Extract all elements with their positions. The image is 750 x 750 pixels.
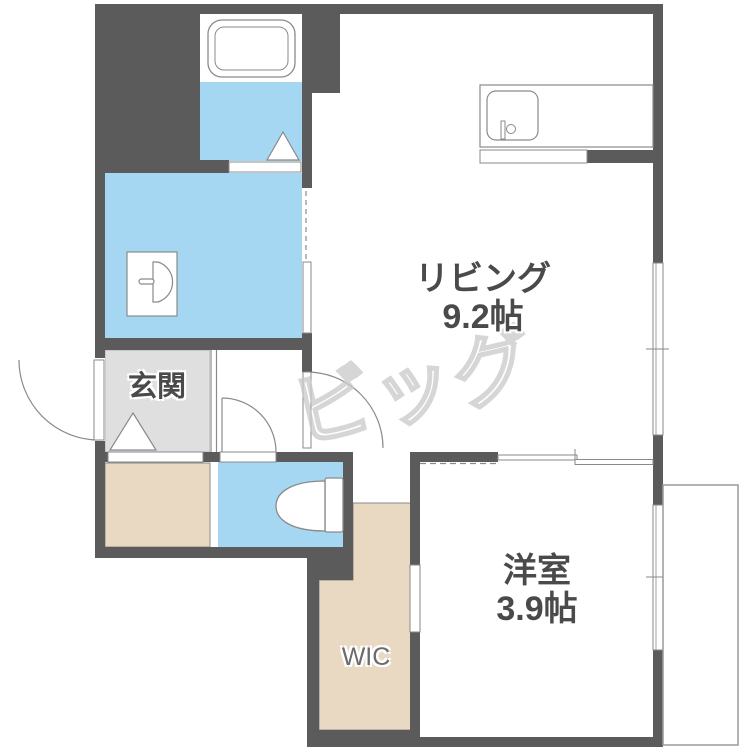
- entrance-label: 玄関: [107, 371, 207, 403]
- bathtub-icon: [208, 20, 295, 77]
- living-room-size: 9.2帖: [383, 298, 583, 336]
- front-door-leaf: [94, 360, 104, 440]
- entrance-threshold: [108, 452, 203, 462]
- toilet-door: [220, 398, 276, 462]
- entrance-step-marker: [110, 413, 156, 450]
- bedroom-size: 3.9帖: [437, 590, 637, 628]
- washbasin-icon: [127, 252, 177, 316]
- bath-threshold: [229, 162, 301, 172]
- living-room-label: リビング 9.2帖: [383, 260, 583, 336]
- living-room-name: リビング: [383, 260, 583, 298]
- entrance-hall-divider: [210, 350, 218, 452]
- toilet-door-swing-arc: [222, 398, 276, 452]
- wic-name: WIC: [316, 643, 416, 671]
- wic-door-opening: [410, 565, 420, 632]
- wic-label: WIC: [316, 643, 416, 671]
- bath-door-marker: [267, 132, 299, 160]
- living-window: [646, 263, 669, 435]
- entrance-name: 玄関: [107, 371, 207, 403]
- bedroom-name: 洋室: [437, 552, 637, 590]
- washroom-door-panel: [303, 262, 311, 333]
- bedroom-label: 洋室 3.9帖: [437, 552, 637, 628]
- kitchen-sink-icon: [487, 91, 538, 140]
- front-door: [19, 358, 105, 441]
- front-door-swing-arc: [19, 360, 99, 440]
- floorplan: ビッグ リビング 9.2帖 洋室 3.9帖 玄関 WIC: [0, 0, 750, 750]
- balcony-outline: [663, 485, 738, 745]
